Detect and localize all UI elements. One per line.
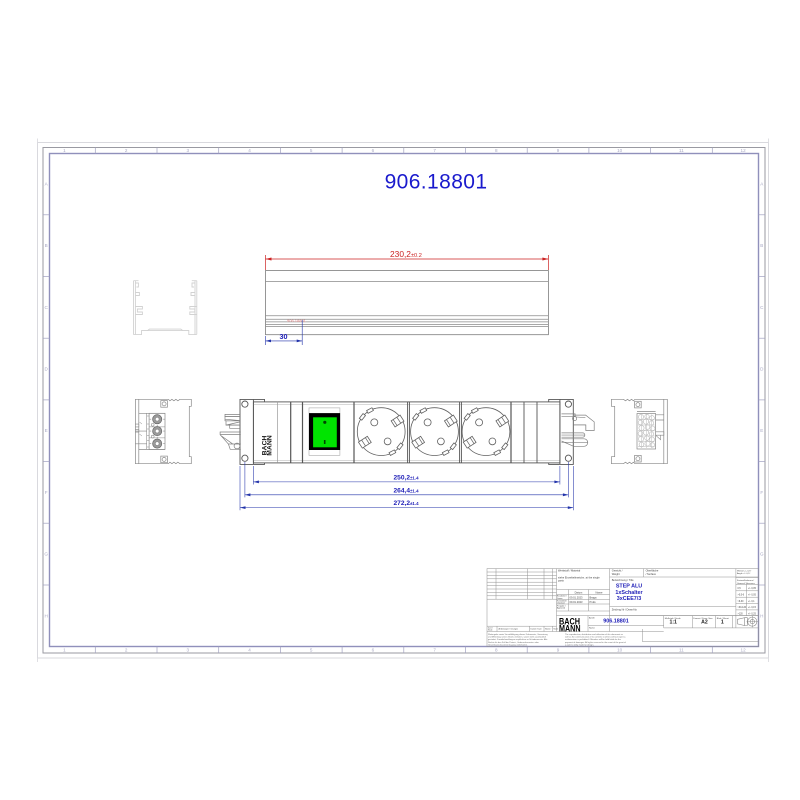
svg-text:B: B <box>45 243 48 248</box>
svg-text:/ Surface: / Surface <box>646 572 657 576</box>
svg-text:>120: >120 <box>738 613 744 616</box>
svg-text:1xSchalter: 1xSchalter <box>615 590 643 596</box>
svg-text:Checked: Checked <box>557 603 564 605</box>
svg-text:State: State <box>488 628 492 631</box>
svg-text:7: 7 <box>433 148 436 153</box>
svg-text:General Tolerance: General Tolerance <box>737 582 756 585</box>
svg-text:MANN: MANN <box>559 623 581 633</box>
svg-text:+/- 0,25: +/- 0,25 <box>748 614 757 616</box>
svg-text:Werkstoff / Material: Werkstoff / Material <box>558 569 581 573</box>
svg-text:Winkel +/- 0,5°: Winkel +/- 0,5° <box>737 570 751 572</box>
svg-text:09.01.2023: 09.01.2023 <box>570 595 584 599</box>
svg-text:1: 1 <box>63 648 66 653</box>
svg-text:+/- 0,15: +/- 0,15 <box>748 607 757 609</box>
svg-text:5: 5 <box>310 648 313 653</box>
svg-text:+/- 0,05: +/- 0,05 <box>748 588 757 590</box>
svg-text:1: 1 <box>721 620 724 626</box>
svg-text:E: E <box>45 428 48 433</box>
svg-text:siehe Einzelteilezeichn. at th: siehe Einzelteilezeichn. at the single <box>558 575 600 579</box>
svg-text:4: 4 <box>248 648 251 653</box>
svg-text:>0,5-6: >0,5-6 <box>738 593 745 596</box>
svg-text:authorization is prohibited. O: authorization is prohibited. Offenders w… <box>565 638 622 641</box>
svg-text:906.18801: 906.18801 <box>603 619 628 625</box>
svg-text:6: 6 <box>372 148 375 153</box>
svg-text:906.18801: 906.18801 <box>385 171 488 194</box>
svg-text:9: 9 <box>557 148 560 153</box>
svg-text:7: 7 <box>433 648 436 653</box>
svg-text:Angle +/- 0,5°: Angle +/- 0,5° <box>737 572 750 575</box>
svg-text:1:1: 1:1 <box>669 620 677 626</box>
svg-text:B: B <box>760 243 763 248</box>
svg-text:2: 2 <box>125 148 128 153</box>
svg-text:2: 2 <box>125 648 128 653</box>
svg-text:parts: parts <box>558 579 564 583</box>
svg-text:4: 4 <box>248 148 251 153</box>
svg-text:12: 12 <box>741 148 747 153</box>
svg-text:E: E <box>760 428 763 433</box>
svg-text:12: 12 <box>741 648 747 653</box>
svg-text:payment of damages. All rights: payment of damages. All rights reserved … <box>565 641 626 644</box>
svg-text:The reproduction, distribution: The reproduction, distribution and utili… <box>565 633 623 636</box>
svg-text:10: 10 <box>617 648 623 653</box>
svg-text:F: F <box>45 490 48 495</box>
svg-text:a patent, utility model or des: a patent, utility model or design. <box>565 643 594 646</box>
svg-text:Drawn: Drawn <box>557 597 562 600</box>
svg-text:Geschmacksmustereintragung vor: Geschmacksmustereintragung vorbehalten. <box>488 643 528 646</box>
svg-text:Braga: Braga <box>590 595 597 599</box>
svg-text:Änderungen / Changes: Änderungen / Changes <box>499 628 519 631</box>
svg-text:Freimaßtoleranz /: Freimaßtoleranz / <box>737 579 755 582</box>
svg-text:G: G <box>44 552 48 557</box>
svg-text:30: 30 <box>280 332 288 341</box>
svg-text:Art-Nr: Art-Nr <box>589 617 595 620</box>
svg-text:Approved: Approved <box>557 607 565 610</box>
svg-text:Name /: Name / <box>545 629 552 631</box>
svg-text:+/- 0,1: +/- 0,1 <box>748 601 755 603</box>
svg-text:Datum / Date: Datum / Date <box>531 628 542 631</box>
svg-text:Name: Name <box>589 628 596 630</box>
svg-text:F: F <box>760 490 763 495</box>
svg-text:272,2±1.4: 272,2±1.4 <box>393 500 419 507</box>
svg-text:MANN: MANN <box>267 435 274 455</box>
svg-text:Norm: Norm <box>554 628 559 631</box>
svg-text:>30-120: >30-120 <box>738 606 747 609</box>
svg-text:906.18801: 906.18801 <box>287 318 307 323</box>
svg-text:3: 3 <box>187 148 190 153</box>
svg-text:gestattet. Zuwiderhandlungen v: gestattet. Zuwiderhandlungen verpflichte… <box>488 638 548 641</box>
svg-text:Bezeichnung / Title: Bezeichnung / Title <box>612 578 634 582</box>
svg-text:H: H <box>760 613 763 618</box>
svg-text:09.01.2023: 09.01.2023 <box>570 600 584 604</box>
svg-text:264,4±1.4: 264,4±1.4 <box>393 487 419 494</box>
svg-text:11: 11 <box>679 648 684 653</box>
svg-text:Prufe: Prufe <box>590 600 597 604</box>
svg-text:5: 5 <box>310 148 313 153</box>
svg-text:3: 3 <box>187 648 190 653</box>
svg-text:3xCEE7/3: 3xCEE7/3 <box>617 596 642 602</box>
svg-text:Zeichng Nr / Draw-No: Zeichng Nr / Draw-No <box>612 608 638 612</box>
svg-text:6: 6 <box>372 648 375 653</box>
svg-text:Rechte für den Fall der Patent: Rechte für den Fall der Patent-, Gebrauc… <box>488 641 539 644</box>
svg-text:1: 1 <box>63 148 66 153</box>
svg-text:Name: Name <box>596 590 603 594</box>
svg-text:8: 8 <box>495 648 498 653</box>
svg-text:250,2±1.4: 250,2±1.4 <box>393 474 419 481</box>
svg-text:A2: A2 <box>701 620 708 626</box>
svg-text:Weitergabe sowie Vervielfältig: Weitergabe sowie Vervielfältigung dieses… <box>488 633 548 636</box>
svg-text:9: 9 <box>557 648 560 653</box>
svg-text:Datum: Datum <box>575 590 583 594</box>
svg-text:H: H <box>45 613 48 618</box>
svg-text:STEP ALU: STEP ALU <box>616 583 642 589</box>
svg-text:und Mitteilung seines Inhalts: und Mitteilung seines Inhalts verboten, … <box>488 636 546 639</box>
svg-text:+/- 0,05: +/- 0,05 <box>748 594 757 596</box>
svg-text:11: 11 <box>679 148 684 153</box>
svg-text:Weight: Weight <box>612 572 620 576</box>
svg-text:>6-30: >6-30 <box>738 600 745 603</box>
svg-text:8: 8 <box>495 148 498 153</box>
svg-text:well as the communication of i: well as the communication of its content… <box>565 636 626 639</box>
svg-text:10: 10 <box>617 148 623 153</box>
svg-text:G: G <box>760 552 764 557</box>
